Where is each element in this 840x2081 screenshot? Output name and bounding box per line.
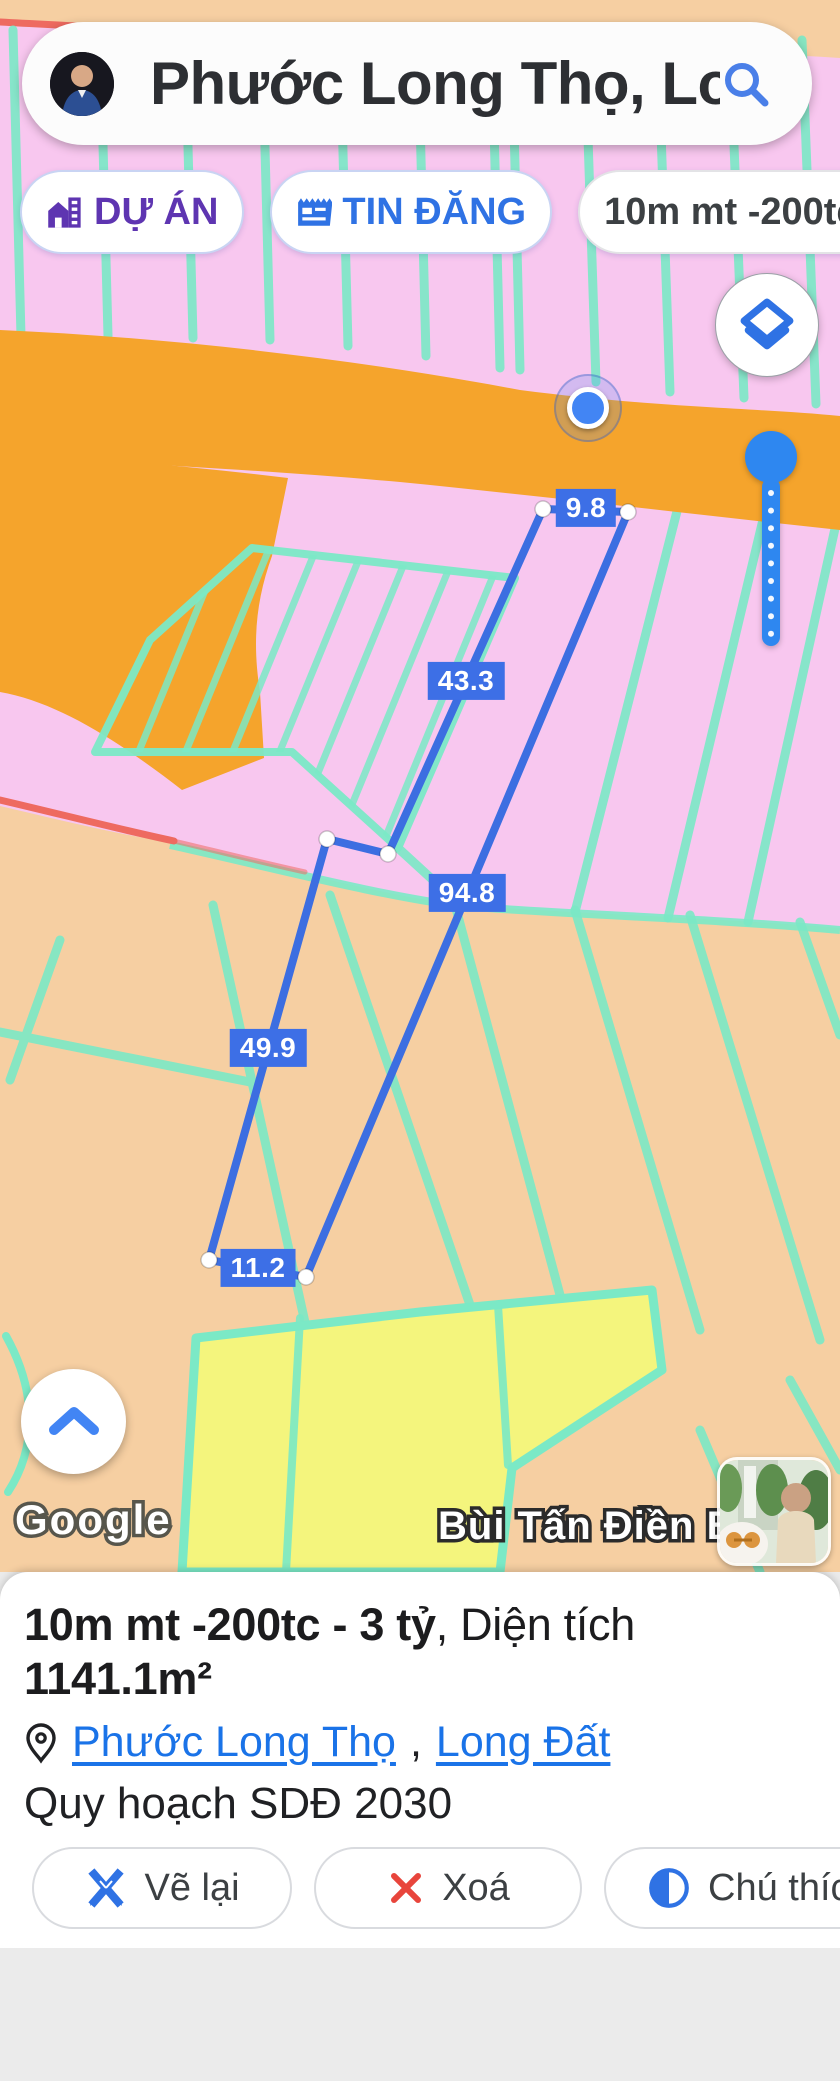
- redraw-crossed-pencils-icon: [84, 1866, 128, 1910]
- listing-title: 10m mt -200tc - 3 tỷ, Diện tích 1141.1m²: [24, 1598, 816, 1706]
- measure-label-right: 94.8: [429, 874, 506, 912]
- measure-label-top: 9.8: [556, 489, 616, 527]
- chip-listing-label: 10m mt -200tc - 3: [604, 191, 840, 234]
- search-icon[interactable]: [720, 58, 772, 110]
- legend-button[interactable]: Chú thíc: [604, 1847, 840, 1929]
- chip-du-an-label: DỰ ÁN: [94, 191, 218, 234]
- listings-board-icon: [296, 194, 332, 230]
- measure-label-left-upper: 43.3: [428, 662, 505, 700]
- listing-area-value: 1141.1m²: [24, 1653, 212, 1704]
- watermark-avatar-photo: [717, 1457, 831, 1566]
- search-bar[interactable]: Phước Long Thọ, Lon...: [22, 22, 812, 145]
- legend-contrast-icon: [646, 1865, 692, 1911]
- delete-x-icon: [386, 1868, 426, 1908]
- zoom-slider-handle[interactable]: [745, 431, 797, 483]
- listing-title-separator: , Diện tích: [436, 1599, 635, 1650]
- listing-title-price: 10m mt -200tc - 3 tỷ: [24, 1599, 436, 1650]
- user-avatar[interactable]: [50, 52, 114, 116]
- planning-label: Quy hoạch SDĐ 2030: [24, 1779, 816, 1829]
- measure-label-bottom: 11.2: [221, 1249, 296, 1287]
- avatar-photo-graphic: [720, 1460, 828, 1563]
- measure-label-left-lower: 49.9: [230, 1029, 307, 1067]
- chip-tin-dang[interactable]: TIN ĐĂNG: [270, 170, 552, 254]
- app-screen: 9.8 43.3 94.8 49.9 11.2: [0, 0, 840, 2081]
- search-input[interactable]: Phước Long Thọ, Lon...: [150, 49, 720, 118]
- bottom-system-area: [0, 1948, 840, 2081]
- delete-button[interactable]: Xoá: [314, 1847, 582, 1929]
- layers-button[interactable]: [715, 273, 819, 377]
- expand-panel-button[interactable]: [21, 1369, 126, 1474]
- redraw-button-label: Vẽ lại: [144, 1867, 239, 1910]
- location-pin-icon: [24, 1722, 58, 1764]
- delete-button-label: Xoá: [442, 1867, 510, 1910]
- location-link-ward[interactable]: Phước Long Thọ: [72, 1718, 396, 1767]
- redraw-button[interactable]: Vẽ lại: [32, 1847, 292, 1929]
- current-location-marker: [554, 374, 622, 442]
- project-buildings-icon: [46, 193, 84, 231]
- location-dot-icon: [567, 387, 609, 429]
- zoom-slider[interactable]: [741, 431, 801, 671]
- chip-du-an[interactable]: DỰ ÁN: [20, 170, 244, 254]
- filter-chips-row: DỰ ÁN TIN ĐĂNG 10m mt -200tc - 3: [20, 170, 840, 254]
- location-separator: ,: [410, 1718, 422, 1767]
- action-buttons-row: Vẽ lại Xoá Chú thíc: [32, 1847, 816, 1929]
- chip-tin-dang-label: TIN ĐĂNG: [342, 191, 526, 234]
- zoom-slider-dots: [768, 490, 774, 637]
- info-panel: 10m mt -200tc - 3 tỷ, Diện tích 1141.1m²…: [0, 1572, 840, 1948]
- chevron-up-icon: [46, 1404, 102, 1440]
- location-link-district[interactable]: Long Đất: [436, 1718, 611, 1767]
- user-avatar-photo: [50, 52, 114, 116]
- legend-button-label: Chú thíc: [708, 1867, 840, 1910]
- layers-icon: [738, 296, 796, 354]
- google-attribution: Google: [15, 1496, 172, 1544]
- chip-listing[interactable]: 10m mt -200tc - 3: [578, 170, 840, 254]
- location-row: Phước Long Thọ , Long Đất: [24, 1718, 816, 1767]
